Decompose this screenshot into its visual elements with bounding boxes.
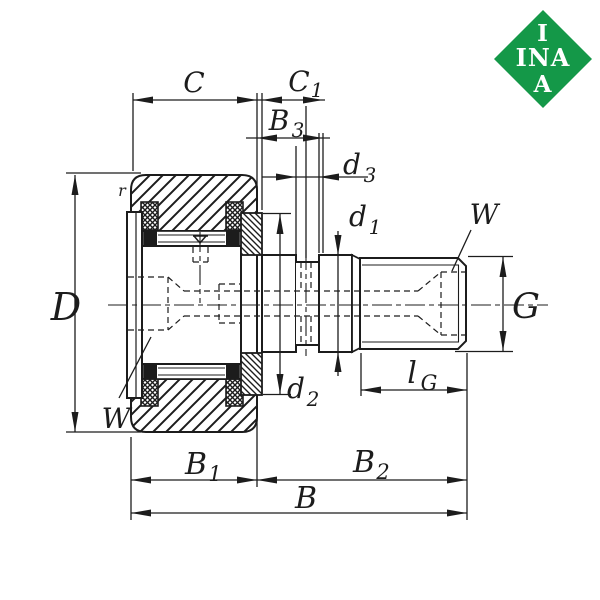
- ina-logo-row3: A: [533, 71, 553, 98]
- collar-bottom-hatch: [241, 353, 262, 395]
- lg-arrow-left: [361, 387, 381, 394]
- page: C C 1 B 3 d 3 d 1 d 2 D G W W r l G B 1 …: [0, 0, 600, 600]
- dim-label-B3-base: B: [268, 104, 290, 137]
- collar: [241, 213, 262, 395]
- dim-label-d3-sub: 3: [364, 163, 377, 187]
- seal-bottom-left-hatch: [141, 379, 158, 406]
- d-arrow-bottom: [72, 412, 79, 432]
- stud-second-section: [319, 255, 352, 352]
- dim-label-d1-sub: 1: [369, 215, 382, 239]
- b3-arrow-right: [303, 135, 323, 142]
- needle-retainer-top-right: [226, 231, 239, 246]
- g-arrow-top: [500, 257, 507, 277]
- dim-label-W-right: W: [470, 198, 501, 231]
- needle-row-bottom: [144, 364, 239, 379]
- dim-label-d2-base: d: [287, 372, 305, 405]
- needle-retainer-bottom-left: [144, 364, 157, 379]
- dim-label-B2-base: B: [352, 445, 375, 480]
- needle-row-top: [144, 231, 239, 246]
- dim-label-W-left: W: [102, 402, 133, 435]
- dim-label-C: C: [183, 66, 204, 99]
- dim-label-B1-base: B: [184, 447, 207, 482]
- d3-arrow-left: [276, 174, 296, 181]
- dim-label-B2-sub: 2: [375, 460, 389, 484]
- c-arrow-right: [237, 97, 257, 104]
- c-arrow-left: [133, 97, 153, 104]
- dim-label-C1-base: C: [288, 65, 309, 98]
- d1-arrow-bottom: [335, 352, 342, 372]
- d-arrow-top: [72, 175, 79, 195]
- dim-label-B3-sub: 3: [292, 118, 305, 142]
- d1-arrow-top: [335, 235, 342, 255]
- dim-label-G: G: [512, 287, 540, 327]
- thread-transition: [352, 255, 360, 352]
- dim-label-d1-base: d: [349, 200, 367, 233]
- needle-retainer-bottom-right: [226, 364, 239, 379]
- d2-arrow-bottom: [277, 374, 284, 394]
- d2-arrow-top: [277, 214, 284, 234]
- dim-label-B1-sub: 1: [208, 462, 221, 486]
- needle-retainer-top-left: [144, 231, 157, 246]
- dim-label-d3-base: d: [343, 148, 361, 181]
- b-arrow-right: [447, 510, 467, 517]
- d3-arrow-right: [319, 174, 339, 181]
- dim-label-D: D: [50, 285, 81, 329]
- dim-label-d2-sub: 2: [306, 387, 320, 411]
- stud-pilot-section: [262, 255, 296, 352]
- dim-label-r: r: [118, 181, 127, 200]
- b1-arrow-left: [131, 477, 151, 484]
- collar-top-hatch: [241, 213, 262, 255]
- threaded-section: [360, 258, 466, 349]
- g-arrow-bottom: [500, 331, 507, 351]
- c1-arrow-left: [262, 97, 282, 104]
- dim-label-C1-sub: 1: [311, 78, 324, 102]
- b1-arrow-right: [237, 477, 257, 484]
- b2-arrow-left: [257, 477, 277, 484]
- dim-label-lG-base: l: [407, 356, 417, 391]
- b2-arrow-right: [447, 477, 467, 484]
- seal-top-left-hatch: [141, 202, 158, 230]
- dim-label-B: B: [294, 481, 317, 516]
- dim-label-lG-sub: G: [421, 371, 438, 395]
- bearing-cross-section-drawing: C C 1 B 3 d 3 d 1 d 2 D G W W r l G B 1 …: [0, 0, 600, 600]
- lg-arrow-right: [447, 387, 467, 394]
- ina-logo-row2: INA: [516, 43, 571, 72]
- stud-neck: [296, 262, 319, 345]
- b-arrow-left: [131, 510, 151, 517]
- stud-sections: [262, 255, 466, 352]
- ina-logo: I INA A: [494, 10, 592, 108]
